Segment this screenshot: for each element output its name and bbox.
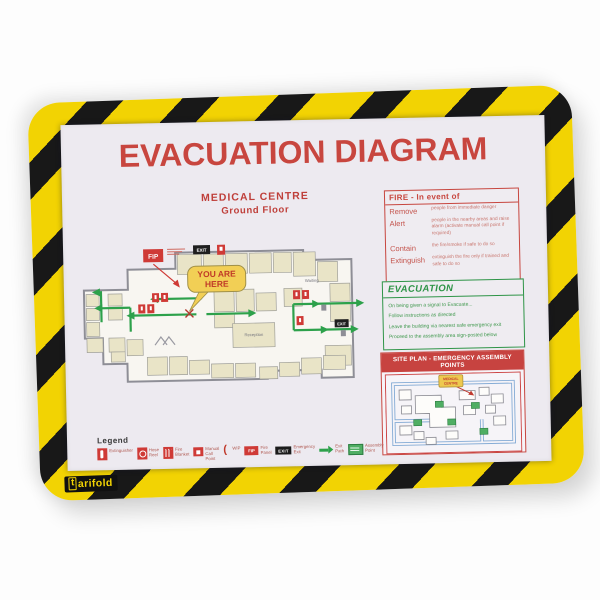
exit-sign-label-2: EXIT	[337, 321, 347, 326]
site-plan-map: MEDICAL CENTRE	[385, 372, 523, 455]
hose-reel-icon	[137, 447, 147, 459]
fire-row-alert: Alert people in the nearby areas and rai…	[385, 215, 518, 240]
hazard-frame: EVACUATION DIAGRAM MEDICAL CENTRE Ground…	[27, 85, 585, 502]
waiting-room-label: Waiting	[305, 278, 320, 283]
phone-icon	[223, 446, 230, 458]
fire-blanket-icon	[163, 447, 173, 459]
fire-instructions-box: FIRE - In event of Remove people from im…	[384, 188, 521, 285]
legend-item: Exit Path	[319, 443, 344, 454]
you-are-here-line1: YOU ARE	[197, 268, 236, 279]
poster-subtitle: MEDICAL CENTRE Ground Floor	[122, 188, 388, 219]
legend-item: Extinguisher	[97, 448, 133, 461]
tarifold-logo-t: t	[68, 477, 77, 490]
fire-row-extinguish: Extinguish extinguish the fire only if t…	[386, 252, 519, 271]
legend-row: Extinguisher Hose Reel Fire Blanket Manu…	[97, 442, 381, 463]
you-are-here-line2: HERE	[205, 279, 229, 289]
site-plan-title: SITE PLAN - EMERGENCY ASSEMBLY POINTS	[381, 350, 523, 372]
evacuation-instructions-box: EVACUATION On being given a signal to Ev…	[382, 278, 525, 350]
reception-room-label: Reception	[244, 332, 264, 337]
manual-call-point-icon	[193, 447, 203, 456]
legend-item: FIP Fire Panel	[244, 445, 271, 456]
floor-plan: FIP EXIT EXIT	[67, 237, 372, 401]
poster-title: EVACUATION DIAGRAM	[61, 129, 546, 176]
evacuation-line: Leave the building via nearest safe emer…	[384, 321, 524, 330]
evacuation-line: On being given a signal to Evacuate...	[383, 300, 523, 309]
product-photo: EVACUATION DIAGRAM MEDICAL CENTRE Ground…	[0, 0, 600, 600]
site-callout-line2: CENTRE	[444, 381, 459, 385]
site-plan-box: SITE PLAN - EMERGENCY ASSEMBLY POINTS	[380, 349, 526, 455]
extinguisher-icon	[97, 448, 107, 460]
legend-item: Hose Reel	[137, 447, 159, 459]
exit-path-icon	[319, 445, 333, 453]
exit-sign-icon: EXIT	[275, 446, 291, 454]
evacuation-line: Proceed to the assembly area sign-posted…	[384, 331, 524, 340]
legend-item: Fire Blanket	[163, 446, 190, 459]
legend-item: Assembly Point	[348, 442, 384, 455]
evacuation-poster: EVACUATION DIAGRAM MEDICAL CENTRE Ground…	[60, 115, 551, 471]
legend: Legend Extinguisher Hose Reel Fire Blank…	[97, 430, 382, 463]
assembly-point-icon	[348, 444, 363, 455]
tarifold-logo: t arifold	[64, 475, 118, 493]
legend-item: EXIT Emergency Exit	[275, 444, 315, 455]
exit-sign-label: EXIT	[197, 248, 207, 253]
tarifold-logo-text: arifold	[78, 476, 113, 489]
legend-item: WIP	[223, 445, 240, 457]
fip-label: FIP	[148, 254, 159, 261]
legend-item: Manual Call Point	[193, 446, 219, 462]
fip-icon: FIP	[244, 446, 258, 455]
evacuation-line: Follow instructions as directed	[383, 310, 523, 319]
evacuation-box-title: EVACUATION	[383, 279, 523, 298]
